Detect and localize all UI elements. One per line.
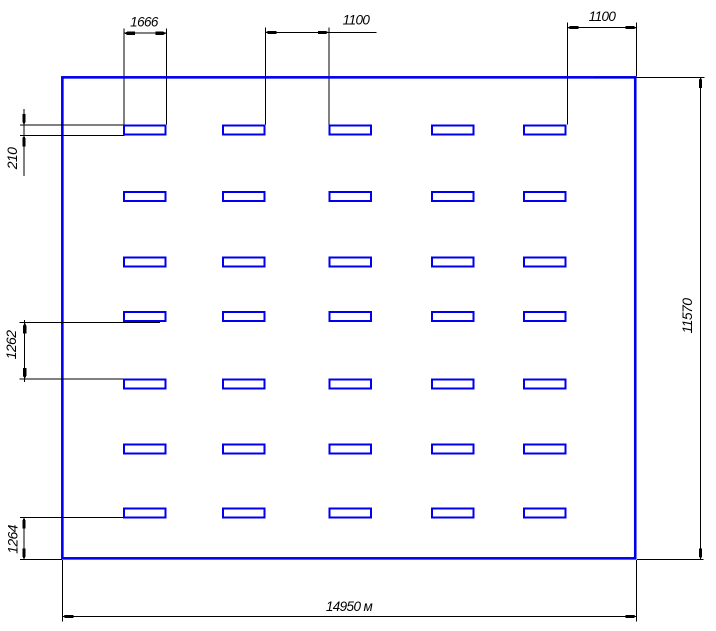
svg-text:1264: 1264 <box>4 524 20 554</box>
svg-text:11570: 11570 <box>679 298 695 334</box>
svg-text:14950 м: 14950 м <box>326 599 373 614</box>
svg-text:1262: 1262 <box>3 330 19 360</box>
svg-text:1100: 1100 <box>589 9 617 24</box>
svg-text:1100: 1100 <box>343 12 371 27</box>
svg-text:1666: 1666 <box>130 14 159 29</box>
svg-text:210: 210 <box>4 147 20 170</box>
